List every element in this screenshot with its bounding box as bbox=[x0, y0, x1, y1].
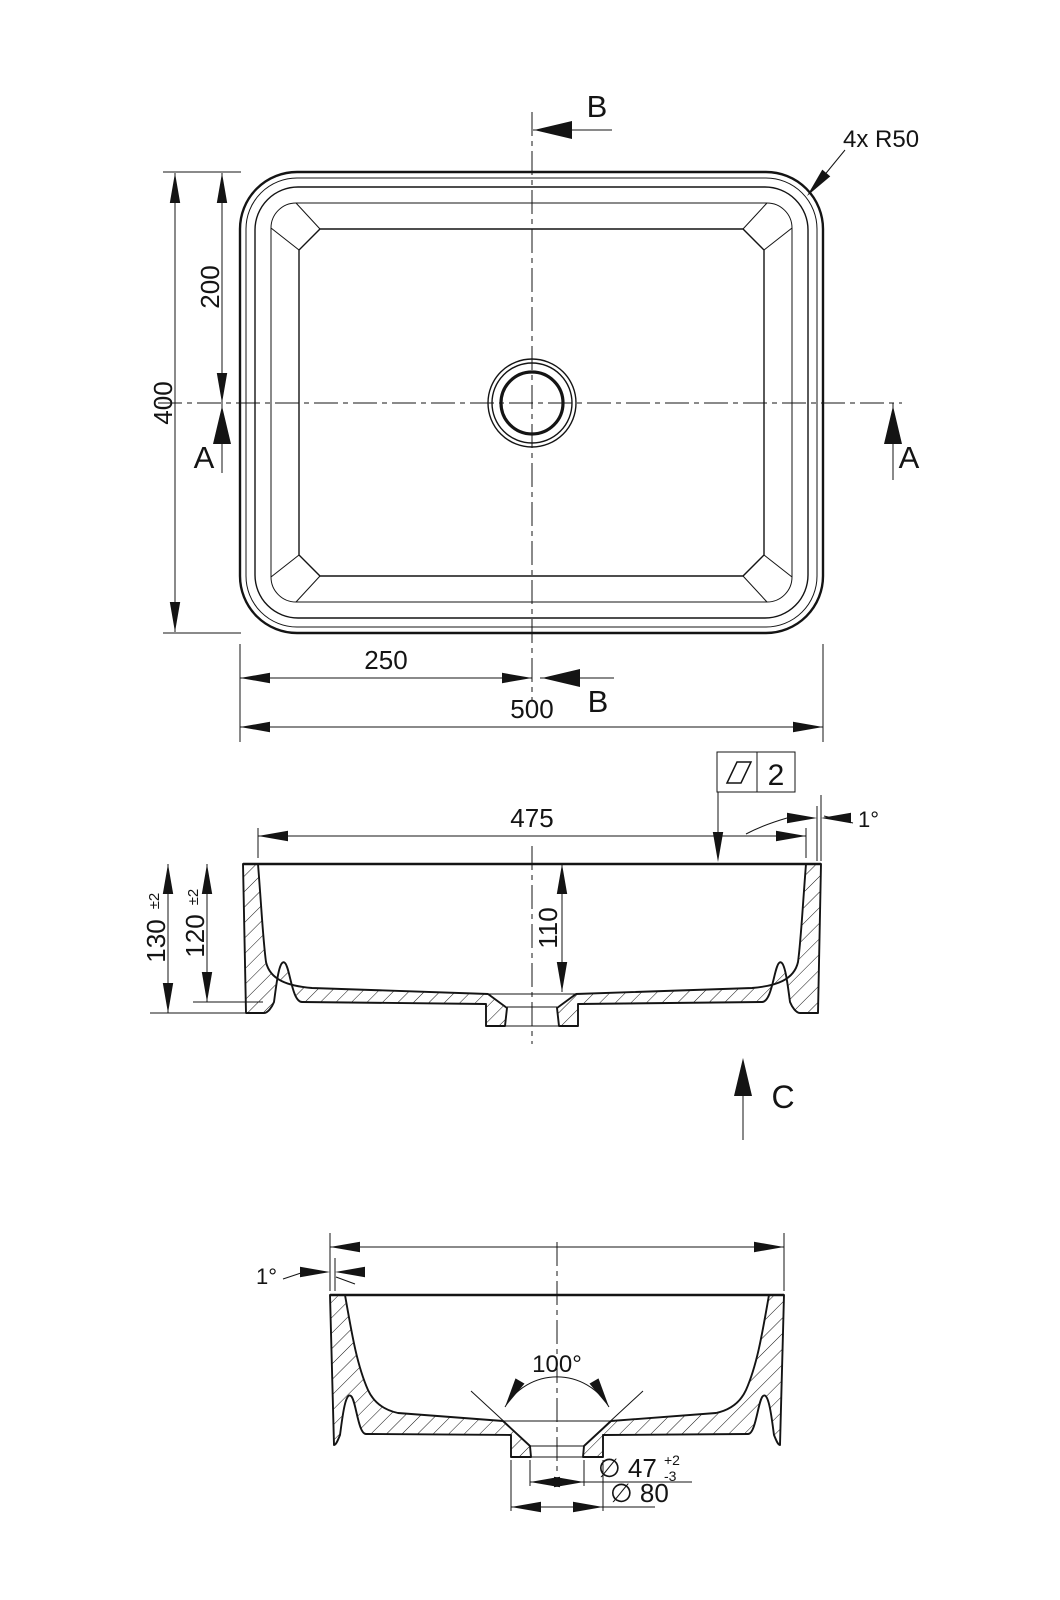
top-view-centerlines bbox=[158, 112, 902, 700]
arrow-120-top bbox=[202, 864, 212, 894]
arrow-500-left bbox=[240, 722, 270, 732]
arrow-corner-radius bbox=[803, 170, 830, 200]
section-arrow-a-left bbox=[213, 406, 231, 444]
drawing-sheet: 400 200 250 500 4x R50 B B A A 2 475 bbox=[0, 0, 1060, 1600]
section-label-b-top: B bbox=[587, 89, 608, 124]
dim-inner-height-tol-label: ±2 bbox=[185, 889, 202, 906]
front-section-right-wall bbox=[557, 864, 821, 1026]
arrow-500-right bbox=[793, 722, 823, 732]
arrow-draft-bot-right bbox=[335, 1267, 365, 1277]
arrow-dia80-left bbox=[511, 1502, 541, 1512]
arrow-cone-left bbox=[500, 1378, 524, 1409]
arrow-400-top bbox=[170, 173, 180, 203]
arrow-130-bottom bbox=[163, 983, 173, 1013]
dim-total-height-label: 130 bbox=[141, 919, 171, 962]
dim-bowl-depth-label: 110 bbox=[533, 907, 563, 948]
arrow-top-dim-right bbox=[754, 1242, 784, 1252]
front-section-view: 2 475 130 ±2 120 ±2 110 1° C bbox=[141, 752, 879, 1140]
draft-angle-leader bbox=[746, 818, 787, 834]
corner-radius-note: 4x R50 bbox=[843, 126, 919, 153]
arrow-cone-right bbox=[589, 1378, 613, 1409]
arrow-200-bottom bbox=[217, 373, 227, 403]
arrow-200-top bbox=[217, 173, 227, 203]
dim-width-label: 500 bbox=[510, 694, 553, 724]
section-label-b-bottom: B bbox=[588, 684, 609, 719]
drawing-canvas: 400 200 250 500 4x R50 B B A A 2 475 bbox=[0, 0, 1060, 1600]
boss-dia-label: ∅ 80 bbox=[610, 1478, 669, 1508]
section-label-a-right: A bbox=[899, 440, 920, 475]
arrow-250-right bbox=[502, 673, 532, 683]
dim-half-height-label: 200 bbox=[195, 265, 225, 308]
front-section-left-wall bbox=[243, 864, 507, 1026]
section-arrow-b-bottom bbox=[542, 669, 580, 687]
view-label-c: C bbox=[771, 1079, 794, 1115]
dim-inner-width-label: 475 bbox=[510, 803, 553, 833]
side-section-left-wall bbox=[330, 1295, 531, 1457]
arrow-draft-left bbox=[787, 813, 817, 823]
arrow-flatness-leader bbox=[713, 832, 723, 862]
draft-angle-label-front: 1° bbox=[858, 807, 879, 832]
top-view-dimension-lines bbox=[163, 130, 893, 742]
arrow-250-left bbox=[240, 673, 270, 683]
view-arrow-c bbox=[734, 1058, 752, 1096]
arrow-dia47-right bbox=[554, 1477, 584, 1487]
side-section-right-wall bbox=[583, 1295, 784, 1457]
section-arrow-b-top bbox=[534, 121, 572, 139]
arrow-draft-bot-left bbox=[300, 1267, 330, 1277]
dim-half-width-label: 250 bbox=[364, 645, 407, 675]
arrow-draft-right bbox=[821, 813, 851, 823]
dim-inner-height-label: 120 bbox=[180, 914, 210, 957]
section-arrow-a-right bbox=[884, 406, 902, 444]
arrow-475-right bbox=[776, 831, 806, 841]
dim-height-label: 400 bbox=[148, 381, 178, 424]
arrow-475-left bbox=[258, 831, 288, 841]
arrow-110-bottom bbox=[557, 962, 567, 992]
arrow-130-top bbox=[163, 864, 173, 894]
arrow-120-bottom bbox=[202, 972, 212, 1002]
drain-cone-angle-label: 100° bbox=[532, 1351, 582, 1378]
arrow-110-top bbox=[557, 864, 567, 894]
arrow-dia80-right bbox=[573, 1502, 603, 1512]
side-section-view: 1° 100° ∅ 47 +2 -3 ∅ 80 bbox=[256, 1233, 784, 1512]
draft-angle-label-side: 1° bbox=[256, 1264, 277, 1289]
top-view: 400 200 250 500 4x R50 B B A A bbox=[148, 89, 920, 742]
section-label-a-left: A bbox=[194, 440, 215, 475]
flatness-value-label: 2 bbox=[768, 759, 785, 792]
arrow-top-dim-left bbox=[330, 1242, 360, 1252]
flatness-symbol-icon bbox=[727, 762, 751, 783]
drain-dia-tol-plus: +2 bbox=[664, 1452, 680, 1468]
dim-total-height-tol-label: ±2 bbox=[146, 893, 163, 910]
arrow-400-bottom bbox=[170, 602, 180, 632]
